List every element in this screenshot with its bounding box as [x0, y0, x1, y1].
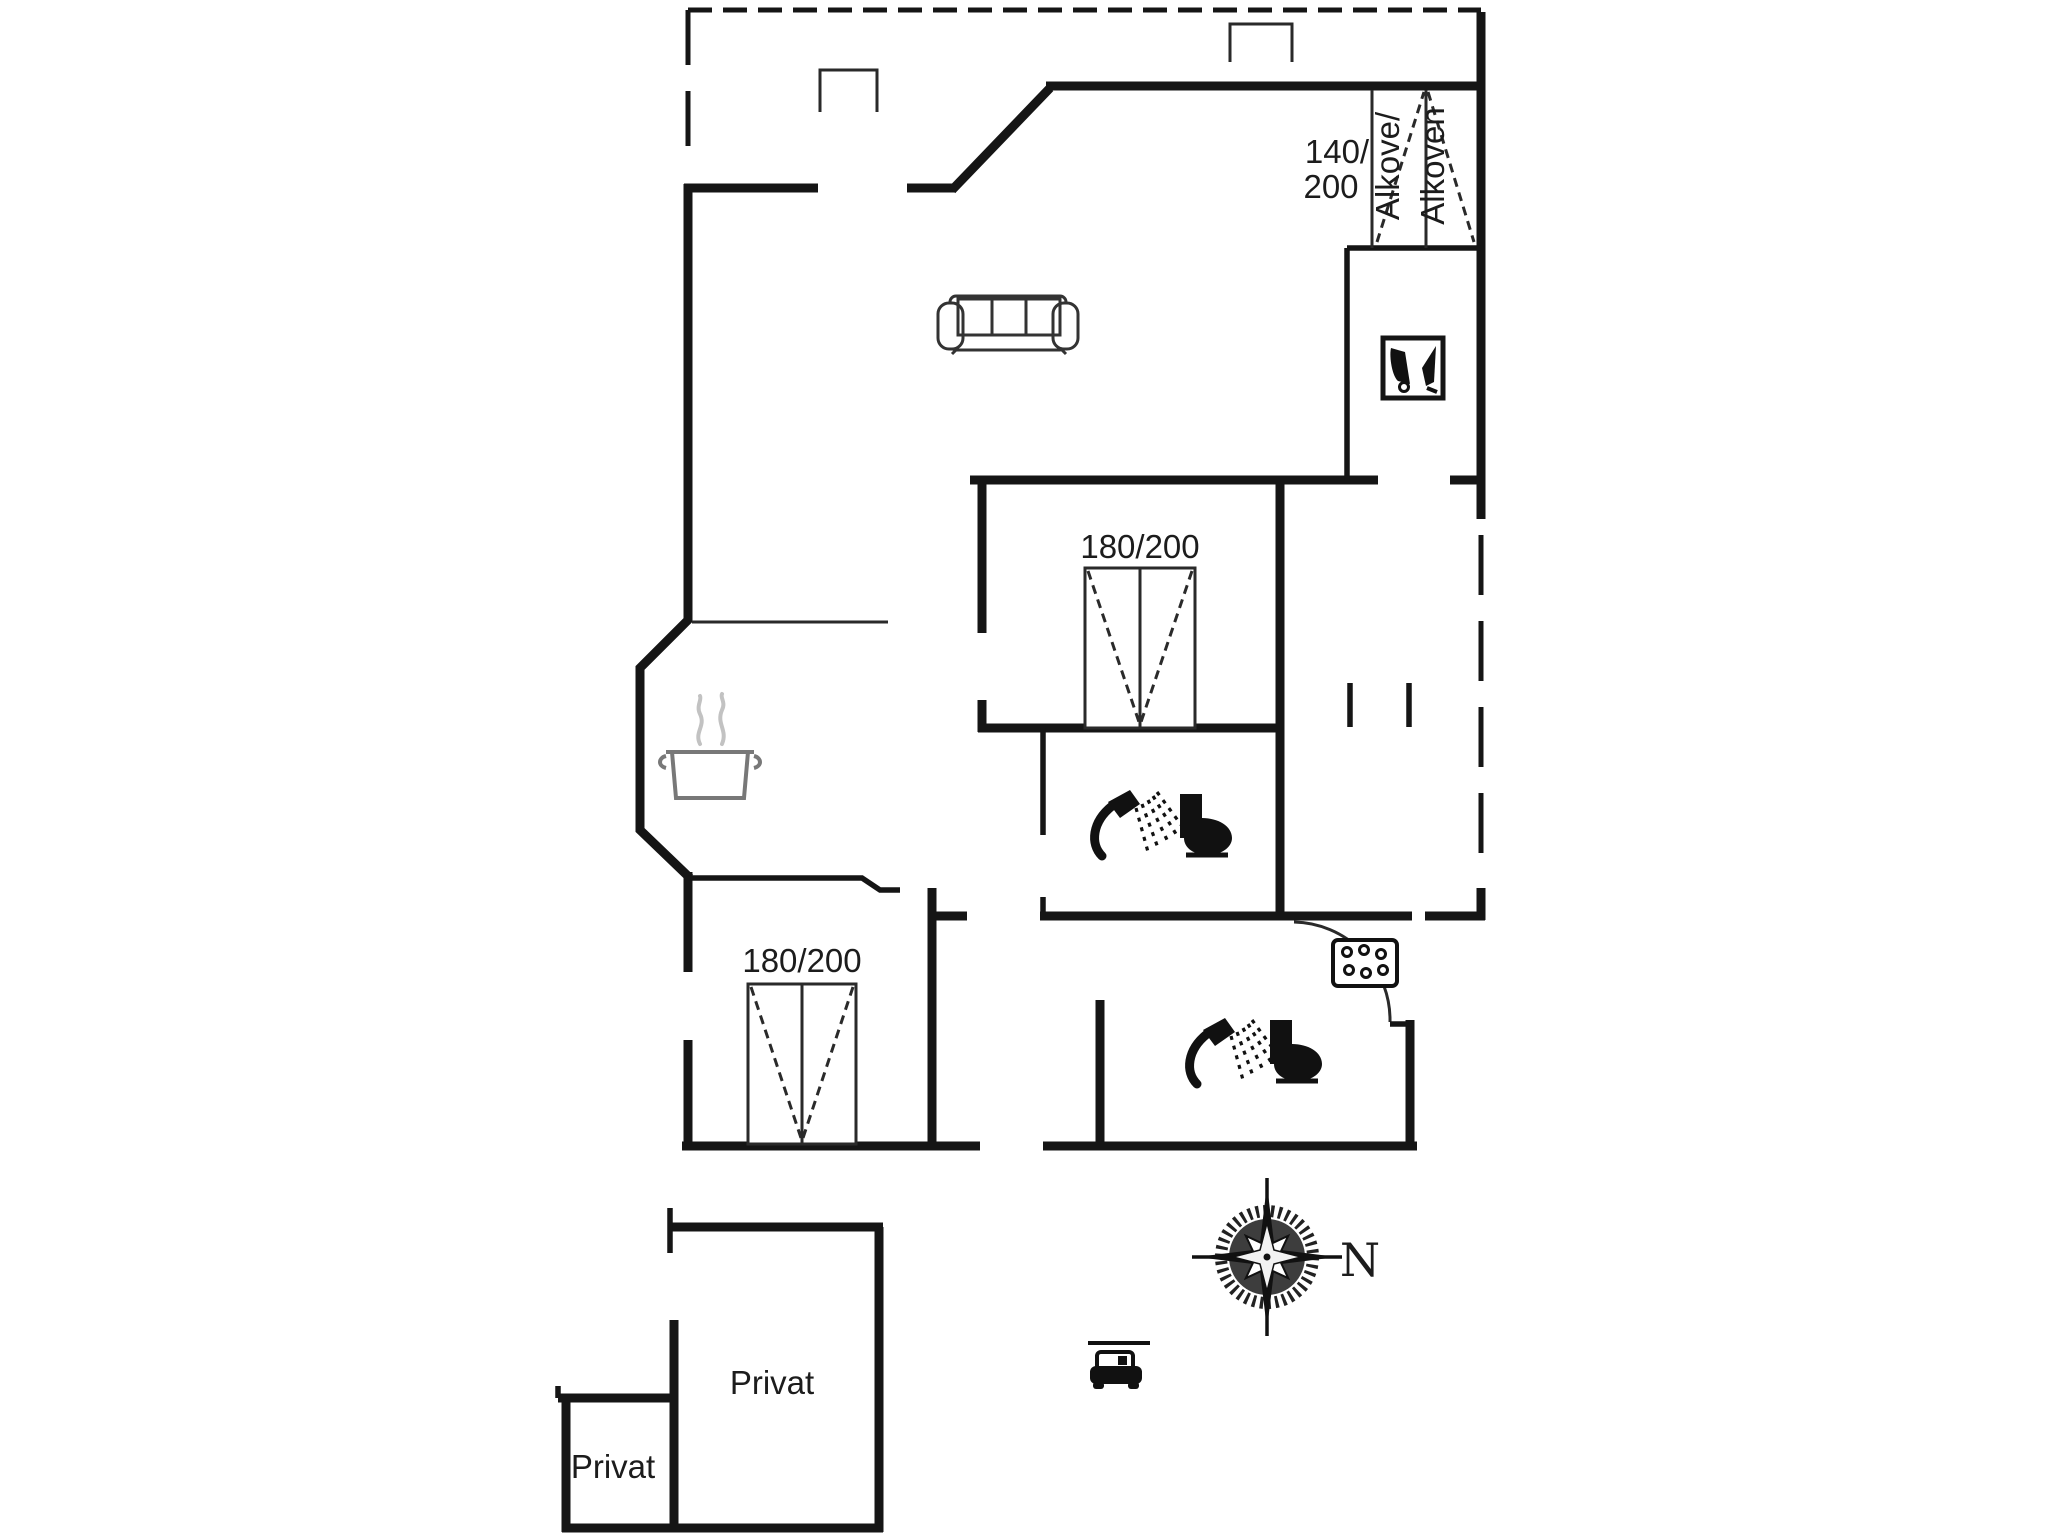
middle-bed-size-label: 180/200: [1080, 528, 1199, 565]
cooking-pot-icon: [660, 694, 760, 798]
compass-rose-icon: [1192, 1178, 1342, 1336]
compass-north-label: N: [1340, 1233, 1380, 1287]
alcove-dimension-line2: 200: [1303, 168, 1358, 205]
double-bed-icon: [748, 984, 856, 1144]
alcove-label-left: Alkove/: [1369, 111, 1406, 220]
shower-icon: [1095, 790, 1182, 856]
alcove-label-right: Alkoven: [1414, 107, 1451, 224]
sofa-icon: [938, 296, 1078, 354]
shower-icon: [1190, 1018, 1277, 1084]
chair-icon: [1383, 338, 1443, 398]
toilet-icon: [1270, 1020, 1322, 1081]
double-bed-icon: [1085, 568, 1195, 728]
car-icon: [1088, 1343, 1150, 1389]
annex-room-large-label: Privat: [730, 1364, 814, 1401]
lower-bed-size-label: 180/200: [742, 942, 861, 979]
toilet-icon: [1180, 794, 1232, 855]
terrace-door-recess-icon: [820, 24, 1292, 112]
annex-room-small-label: Privat: [571, 1448, 655, 1485]
alcove-dimension-line1: 140/: [1305, 133, 1370, 170]
floor-plan-page: 140/ 200 Alkove/ Alkoven 180/200: [0, 0, 2048, 1536]
floor-plan-drawing: 140/ 200 Alkove/ Alkoven 180/200: [0, 0, 2048, 1536]
hob-icon: [1333, 940, 1397, 986]
